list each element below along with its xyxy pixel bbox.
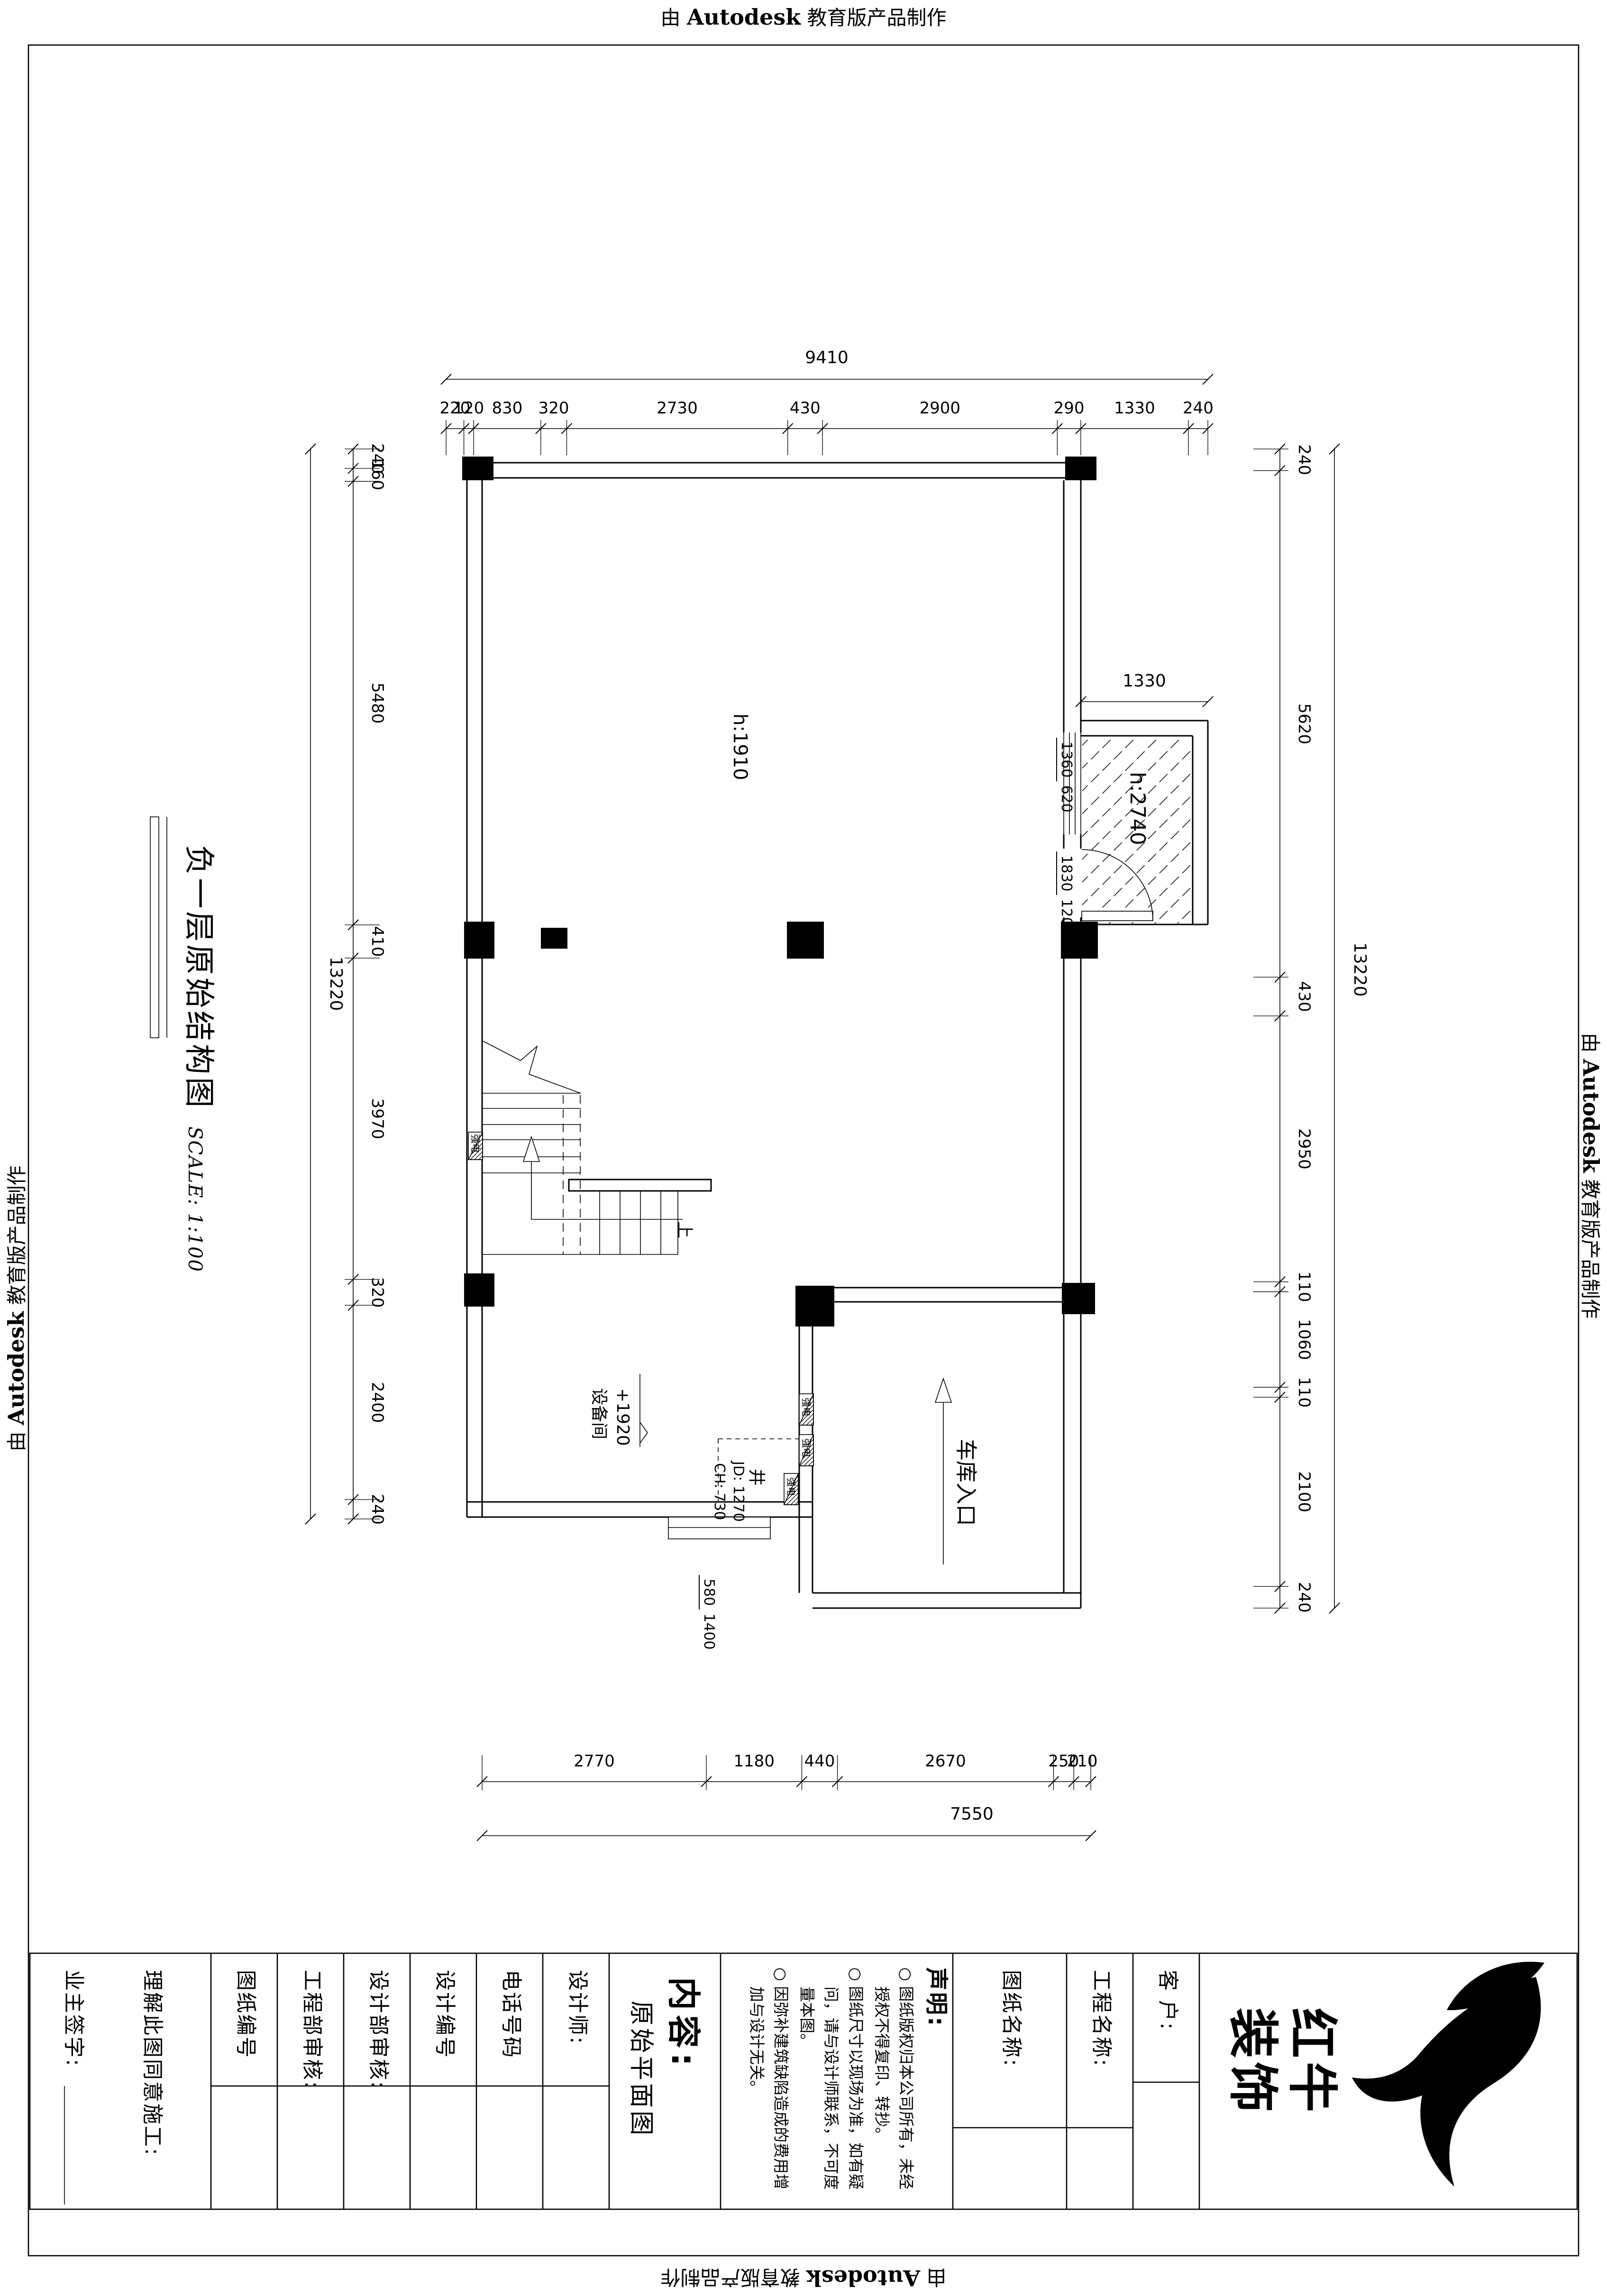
dim-label: 2100 bbox=[1295, 1471, 1314, 1512]
hall-height-label: h:1910 bbox=[729, 713, 751, 780]
statement-cell: 声明: 图纸版权归本公司所有，未经授权不得复印、转抄。 图纸尺寸以现场为准，如有… bbox=[743, 1967, 949, 2195]
brand-name: 红牛装饰 bbox=[1223, 2008, 1342, 2119]
design-review-label: 设计部审核: bbox=[366, 1970, 390, 2090]
dim-label: 1330 bbox=[1123, 671, 1166, 691]
dim-label: 440 bbox=[804, 1752, 835, 1771]
dim-label: 240 bbox=[1183, 399, 1214, 418]
owner-sign-label: 业主签字: bbox=[61, 1970, 85, 2067]
dim-label: 830 bbox=[492, 399, 522, 418]
dim-label: 9410 bbox=[805, 348, 849, 367]
statement-item: 图纸版权归本公司所有，未经授权不得复印、转抄。 bbox=[870, 1967, 918, 2195]
door-lower-dim: 1830120 bbox=[1058, 851, 1075, 930]
statement-item: 因弥补建筑缺陷造成的费用增加与设计无关。 bbox=[745, 1967, 793, 2195]
equipment-elevation-label: +1920 bbox=[613, 1388, 632, 1446]
content-cell: 内容: 原始平面图 bbox=[627, 1977, 703, 2138]
drawing-title-text: 负一层原始结构图 bbox=[181, 845, 216, 1110]
walls bbox=[467, 463, 1208, 1608]
phone-label: 电话号码 bbox=[499, 1970, 523, 2059]
dim-label: 3970 bbox=[368, 1098, 387, 1139]
dim-label: 13220 bbox=[1350, 942, 1370, 997]
dim-label: 1060 bbox=[1295, 1319, 1314, 1360]
garage-entrance-label: 车库入口 bbox=[953, 1439, 978, 1526]
dim-label: 2730 bbox=[657, 399, 698, 418]
garage-arrow bbox=[935, 1379, 951, 1564]
staircase bbox=[482, 1041, 683, 1254]
shaft-ch-label: CH: 730 bbox=[711, 1463, 728, 1520]
shaft-label: 井 bbox=[747, 1469, 766, 1486]
content-value: 原始平面图 bbox=[627, 1977, 655, 2138]
title-underline-bar bbox=[150, 817, 167, 1038]
dim-label: 110 bbox=[1295, 1271, 1314, 1302]
dim-label: 2770 bbox=[574, 1752, 615, 1771]
dim-label: 13220 bbox=[326, 957, 346, 1011]
stamp-bottom: 由 Autodesk 教育版产品制作 bbox=[652, 2265, 955, 2290]
dim-label: 1180 bbox=[733, 1752, 775, 1771]
drawing-sheet: 2201208303202730430290029013302402770118… bbox=[0, 0, 1607, 2296]
stamp-text: 由 bbox=[661, 6, 687, 29]
designer-label: 设计师: bbox=[565, 1970, 589, 2045]
content-label: 内容: bbox=[665, 1977, 703, 2138]
dim-label: 240 bbox=[368, 1494, 387, 1525]
dim-label: 120 bbox=[453, 399, 484, 418]
step-dim: 5801400 bbox=[701, 1575, 717, 1654]
dim-label: 210 bbox=[1067, 1752, 1098, 1771]
columns bbox=[462, 457, 1098, 1326]
client-label: 客 户: bbox=[1155, 1970, 1179, 2031]
strong-power-label: 强电 bbox=[785, 1477, 796, 1496]
dim-label: 110 bbox=[1295, 1377, 1314, 1408]
dim-label: 2950 bbox=[1295, 1128, 1314, 1170]
dim-label: 5480 bbox=[368, 683, 387, 724]
dim-label: 240 bbox=[1295, 1582, 1314, 1613]
dim-label: 1330 bbox=[1114, 399, 1155, 418]
dim-label: 2400 bbox=[368, 1382, 387, 1423]
dim-label: 2900 bbox=[919, 399, 960, 418]
strong-power-label: 强电 bbox=[470, 1134, 481, 1153]
stamp-left: 由 Autodesk 教育版产品制作 bbox=[4, 1157, 29, 1460]
entry-step bbox=[668, 1517, 770, 1539]
dim-label: 2670 bbox=[925, 1752, 966, 1771]
dim-label: 320 bbox=[539, 399, 569, 418]
dim-label: 430 bbox=[1295, 981, 1314, 1012]
stamp-text: 教育版产品制作 bbox=[801, 6, 946, 29]
drawing-title: 负一层原始结构图SCALE: 1:100 bbox=[181, 845, 216, 1272]
shaft-jd-label: JD: 1270 bbox=[730, 1461, 747, 1522]
elevation-marker bbox=[640, 1374, 648, 1447]
stairs-up-label: 上 bbox=[675, 1221, 694, 1238]
dim-label: 320 bbox=[368, 1277, 387, 1308]
drawing-name-label: 图纸名称: bbox=[999, 1970, 1023, 2067]
statement-item: 图纸尺寸以现场为准，如有疑问，请与设计师联系，不可度量本图。 bbox=[795, 1967, 867, 2195]
statement-list: 图纸版权归本公司所有，未经授权不得复印、转抄。 图纸尺寸以现场为准，如有疑问，请… bbox=[745, 1967, 918, 2195]
statement-title: 声明: bbox=[923, 1967, 949, 2195]
equipment-room-label: 设备间 bbox=[589, 1388, 609, 1439]
stamp-top: 由 Autodesk 教育版产品制作 bbox=[652, 5, 955, 30]
sheet-border bbox=[28, 45, 1579, 2256]
strong-power-label: 强电 bbox=[801, 1438, 812, 1457]
drawing-scale: SCALE: 1:100 bbox=[184, 1126, 206, 1272]
elevator-height-label: h:2740 bbox=[1125, 772, 1149, 845]
drawing-no-label: 图纸编号 bbox=[233, 1970, 257, 2059]
window-upper-dim: 1360620 bbox=[1058, 738, 1075, 816]
dimension-chains: 2201208303202730430290029013302402770118… bbox=[305, 348, 1370, 1841]
stamp-brand: Autodesk bbox=[687, 4, 801, 30]
dim-label: 430 bbox=[790, 399, 821, 418]
dim-label: 240 bbox=[1295, 444, 1314, 475]
dim-label: 290 bbox=[1054, 399, 1085, 418]
project-name-label: 工程名称: bbox=[1089, 1970, 1113, 2067]
plan-linework: 2201208303202730430290029013302402770118… bbox=[0, 0, 1607, 2296]
dim-label: 7550 bbox=[950, 1804, 994, 1824]
brand-logo-swoosh bbox=[1352, 1962, 1544, 2186]
dim-label: 5620 bbox=[1295, 704, 1314, 745]
dim-label: 410 bbox=[368, 926, 387, 957]
dim-label: 160 bbox=[368, 459, 387, 490]
design-no-label: 设计编号 bbox=[432, 1970, 457, 2059]
strong-power-label: 强电 bbox=[801, 1398, 812, 1417]
eng-review-label: 工程部审核: bbox=[300, 1970, 324, 2090]
agree-label: 理解此图同意施工: bbox=[140, 1970, 164, 2157]
stamp-right: 由 Autodesk 教育版产品制作 bbox=[1578, 1024, 1603, 1327]
strong-power-boxes bbox=[468, 1132, 813, 1505]
